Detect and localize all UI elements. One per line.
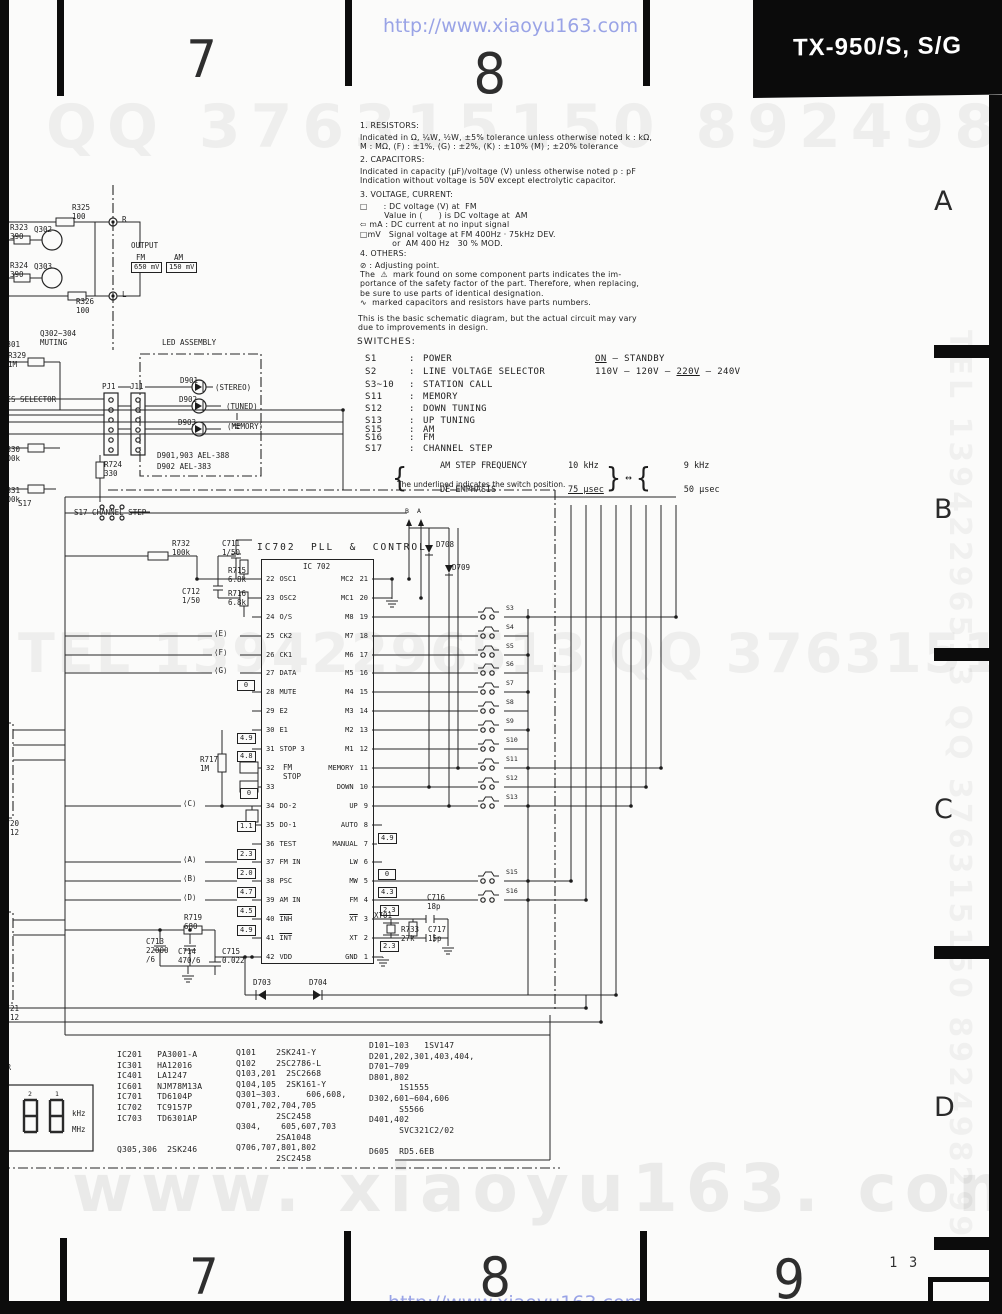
component-label: R733 27k <box>401 926 419 944</box>
ic-pin-right: XT2 <box>292 934 368 942</box>
component-label: IC702 PLL & CONTROL <box>257 544 427 553</box>
parts-list-diodes: D101~103 1SV147D201,202,301,403,404,D701… <box>369 1041 474 1158</box>
channel-step-alt2: 50 μsec <box>684 485 720 495</box>
ic-pin-right: M415 <box>292 688 368 696</box>
voltage-value-box: 4.9 <box>237 733 256 744</box>
note-line: ∿ marked capacitors and resistors have p… <box>360 298 639 307</box>
component-label: 1 <box>55 1090 59 1099</box>
ic-pin-right: MC120 <box>292 594 368 602</box>
section-letter: C <box>934 796 953 823</box>
brace-open-2: { <box>636 471 651 485</box>
component-label: D901 <box>180 377 198 386</box>
component-label: D902 AEL-383 <box>157 463 211 472</box>
switch-symbol: S10 <box>477 736 518 752</box>
parts-line: Q103,201 2SC2668 <box>236 1069 346 1080</box>
voltage-value-box: 650 mV <box>131 262 162 273</box>
switch-function: LINE VOLTAGE SELECTOR <box>423 367 595 377</box>
component-label: AM <box>174 254 183 263</box>
switch-symbol: S9 <box>477 717 514 733</box>
parts-line: Q104,105 2SK161-Y <box>236 1080 346 1091</box>
component-label: D903 <box>178 419 196 428</box>
note-title: 3. VOLTAGE, CURRENT: <box>360 190 556 199</box>
parts-line: D101~103 1SV147 <box>369 1041 474 1052</box>
channel-step-row1-name: AM STEP FREQUENCY <box>440 460 568 472</box>
component-label: C711 1/50 <box>222 540 240 558</box>
voltage-value-box: 4.3 <box>378 887 397 898</box>
component-label: R717 1M <box>200 756 218 774</box>
note-line: Indicated in Ω, ¼W, ½W, ±5% tolerance un… <box>360 133 652 142</box>
switch-positions: 110V – 120V – 220V – 240V <box>595 367 740 377</box>
scan-edge-bottom <box>0 1301 1002 1314</box>
note-others: 4. OTHERS: ⊘ : Adjusting point.The ⚠ mar… <box>360 249 639 307</box>
switch-id: S16 <box>365 433 409 443</box>
corner-bracket-v <box>928 1277 933 1301</box>
ic-pin-right: M213 <box>292 726 368 734</box>
parts-line: D605 RD5.6EB <box>369 1147 474 1158</box>
note-disclaimer: This is the basic schematic diagram, but… <box>358 314 637 333</box>
switch-function: MEMORY <box>423 392 595 402</box>
ic-pin-right: M314 <box>292 707 368 715</box>
switch-id: S11 <box>365 392 409 402</box>
component-label: (MEMORY) <box>227 423 263 432</box>
voltage-value-box: 2.3 <box>237 849 256 860</box>
voltage-value-box: 4.9 <box>378 833 397 844</box>
registration-tick-top-3 <box>643 0 650 86</box>
note-line: The ⚠ mark found on some component parts… <box>360 270 639 279</box>
component-label: ⟨F⟩ <box>214 649 228 658</box>
switch-symbol: S6 <box>477 660 514 676</box>
switches-heading: SWITCHES: <box>357 337 416 347</box>
component-label: D901,903 AEL-388 <box>157 452 229 461</box>
switch-colon: : <box>409 433 423 443</box>
section-letter: A <box>934 188 952 215</box>
parts-line: S5566 <box>369 1105 474 1116</box>
note-line: due to improvements in design. <box>358 323 637 332</box>
section-letter: B <box>934 496 953 523</box>
component-label: C714 470/6 <box>178 948 201 966</box>
corner-bracket-h <box>928 1277 989 1282</box>
model-title: TX-950/S, S/G <box>793 32 962 62</box>
component-label: S17 <box>18 500 32 509</box>
header-page-number-8: 8 <box>473 42 506 107</box>
registration-tick-right-4 <box>934 1237 990 1250</box>
parts-line: 2SC2458 <box>236 1154 346 1165</box>
scanned-schematic-page: QQ 376315150 892498299 TEL 13942296513 Q… <box>0 0 1002 1314</box>
switch-colon: : <box>409 380 423 390</box>
component-label: S17 CHANNEL STEP <box>74 509 146 518</box>
component-label: Q302~304 MUTING <box>40 330 76 348</box>
ic-pin-right: AUTO8 <box>292 821 368 829</box>
note-title: 1. RESISTORS: <box>360 121 652 130</box>
registration-tick-top-2 <box>345 0 352 86</box>
component-label: MHz <box>72 1126 86 1135</box>
component-label: R324 390 <box>10 262 28 280</box>
parts-line: IC601 NJM78M13A <box>117 1082 202 1093</box>
switch-symbol: S8 <box>477 698 514 714</box>
component-label: (TUNED) <box>226 403 258 412</box>
parts-line: IC301 HA12016 <box>117 1061 202 1072</box>
switch-symbol: S7 <box>477 679 514 695</box>
switch-function: DOWN TUNING <box>423 404 595 414</box>
component-label: D708 <box>436 541 454 550</box>
note-line: This is the basic schematic diagram, but… <box>358 314 637 323</box>
parts-line: SVC321C2/02 <box>369 1126 474 1137</box>
registration-tick-bottom-3 <box>640 1231 647 1301</box>
component-label: R724 330 <box>104 461 122 479</box>
parts-line: Q706,707,801,802 <box>236 1143 346 1154</box>
parts-line: Q304, 605,607,703 <box>236 1122 346 1133</box>
component-label: R719 680 <box>184 914 202 932</box>
switch-symbol: S5 <box>477 642 514 658</box>
voltage-value-box: 1.1 <box>237 821 256 832</box>
switch-list-row: S16 : FM <box>365 433 595 443</box>
ic-pin-right: M112 <box>292 745 368 753</box>
channel-step-row2-value: 75 μsec <box>568 485 604 495</box>
component-label: R732 100k <box>172 540 190 558</box>
parts-list-transistors: Q101 2SK241-YQ102 2SC2786-LQ103,201 2SC2… <box>236 1048 346 1165</box>
registration-tick-right-3 <box>934 946 990 959</box>
parts-line: Q101 2SK241-Y <box>236 1048 346 1059</box>
note-title: 4. OTHERS: <box>360 249 639 258</box>
component-label: Q303 <box>34 263 52 272</box>
voltage-value-box: 0 <box>240 788 258 799</box>
component-label: L <box>122 291 127 300</box>
parts-line: IC201 PA3001-A <box>117 1050 202 1061</box>
ic-pin-right: DOWN10 <box>292 783 368 791</box>
note-line: Indicated in capacity (μF)/voltage (V) u… <box>360 167 636 176</box>
parts-line: IC702 TC9157P <box>117 1103 202 1114</box>
parts-line: D302,601~604,606 <box>369 1094 474 1105</box>
component-label: D704 <box>309 979 327 988</box>
registration-tick-top-1 <box>57 0 64 96</box>
component-label: Q302 <box>34 226 52 235</box>
switch-list-row: S12 : DOWN TUNING <box>365 404 595 414</box>
section-letter: D <box>934 1094 955 1121</box>
ic-pin-right: XT3 <box>292 915 368 923</box>
switch-symbol: S12 <box>477 774 518 790</box>
scan-edge-right <box>989 95 1002 1314</box>
note-line: ⊘ : Adjusting point. <box>360 261 639 270</box>
component-label: C715 0.022 <box>222 948 245 966</box>
ic-pin-right: M617 <box>292 651 368 659</box>
footer-page-number-7: 7 <box>189 1248 218 1306</box>
parts-line: IC701 TD6104P <box>117 1092 202 1103</box>
component-label: 2 <box>28 1090 32 1099</box>
parts-line: D401,402 <box>369 1115 474 1126</box>
note-capacitors: 2. CAPACITORS: Indicated in capacity (μF… <box>360 155 636 185</box>
parts-list-ic: IC201 PA3001-AIC301 HA12016IC401 LA1247I… <box>117 1050 202 1156</box>
voltage-value-box: 2.0 <box>237 868 256 879</box>
ic-pin-right: FM4 <box>292 896 368 904</box>
switch-id: S1 <box>365 354 409 364</box>
switch-colon: : <box>409 367 423 377</box>
component-label: SIS SELECTOR <box>2 396 56 405</box>
switch-colon: : <box>409 404 423 414</box>
note-line: portance of the safety factor of the par… <box>360 279 639 288</box>
note-line: M : MΩ, (F) : ±1%, (G) : ±2%, (K) : ±10%… <box>360 142 652 151</box>
component-label: ⟨B⟩ <box>183 875 197 884</box>
switch-colon: : <box>409 354 423 364</box>
voltage-value-box: 150 mV <box>166 262 197 273</box>
component-label: C712 1/50 <box>182 588 200 606</box>
component-label: R325 100 <box>72 204 90 222</box>
voltage-value-box: 4.5 <box>237 906 256 917</box>
note-line: or AM 400 Hz 30 % MOD. <box>360 239 556 248</box>
note-line: Indication without voltage is 50V except… <box>360 176 636 185</box>
note-resistors: 1. RESISTORS: Indicated in Ω, ¼W, ½W, ±5… <box>360 121 652 151</box>
component-label: X701 <box>374 912 392 921</box>
component-label: J11 <box>130 383 144 392</box>
component-label: A <box>417 507 421 516</box>
note-voltage-current: 3. VOLTAGE, CURRENT: □ : DC voltage (V) … <box>360 190 556 248</box>
footer-sheet-number: 1 3 <box>889 1255 921 1271</box>
component-label: C716 18p <box>427 894 445 912</box>
parts-line: IC703 TD6301AP <box>117 1114 202 1125</box>
component-label: (STEREO) <box>215 384 251 393</box>
channel-step-table: { AM STEP FREQUENCY10 kHz DE-EMPHASIS75 … <box>390 448 720 508</box>
component-label: ⟨C⟩ <box>183 800 197 809</box>
component-label: D703 <box>253 979 271 988</box>
component-label: FM STOP <box>283 764 301 782</box>
channel-step-row1-value: 10 kHz <box>568 461 599 471</box>
registration-tick-bottom-2 <box>344 1231 351 1301</box>
component-label: C717 15p <box>428 926 446 944</box>
ic-pin-right: M819 <box>292 613 368 621</box>
underline-note: The underlined indicates the switch posi… <box>397 480 565 489</box>
switch-list-row: S2 : LINE VOLTAGE SELECTOR 110V – 120V –… <box>365 367 740 377</box>
parts-line: D801,802 <box>369 1073 474 1084</box>
component-label: R323 390 <box>10 224 28 242</box>
ic-pin-right: MW5 <box>292 877 368 885</box>
component-label: R <box>122 216 127 225</box>
parts-line: D701~709 <box>369 1062 474 1073</box>
parts-line <box>369 1136 474 1147</box>
component-label: B <box>405 507 409 516</box>
parts-line: Q301~303. 606,608, <box>236 1090 346 1101</box>
switch-list-row: S1 : POWER ON — STANDBY <box>365 354 665 364</box>
component-label: D709 <box>452 564 470 573</box>
switch-symbol: S16 <box>477 887 518 903</box>
channel-step-alt1: 9 kHz <box>684 461 710 471</box>
voltage-value-box: 0 <box>237 680 255 691</box>
ic-pin-right: MEMORY11 <box>292 764 368 772</box>
component-label: R326 100 <box>76 298 94 316</box>
component-label: R715 6.8k <box>228 567 246 585</box>
parts-line: 1S1555 <box>369 1083 474 1094</box>
switch-symbol: S15 <box>477 868 518 884</box>
parts-line: Q305,306 2SK246 <box>117 1145 202 1156</box>
parts-line <box>117 1135 202 1146</box>
switch-function: FM <box>423 433 595 443</box>
parts-line: Q102 2SC2786-L <box>236 1059 346 1070</box>
note-line: ⇦ mA : DC current at no input signal <box>360 220 556 229</box>
registration-tick-right-2 <box>934 648 990 661</box>
voltage-value-box: 4.7 <box>237 887 256 898</box>
model-title-box: TX-950/S, S/G <box>753 0 1002 98</box>
parts-line: IC401 LA1247 <box>117 1071 202 1082</box>
ic-pin-right: MANUAL7 <box>292 840 368 848</box>
component-label: D902 <box>179 396 197 405</box>
switch-id: S3~10 <box>365 380 409 390</box>
switch-colon: : <box>409 392 423 402</box>
voltage-value-box: 4.8 <box>237 751 256 762</box>
component-label: C713 22000 /6 <box>146 938 169 964</box>
component-label: kHz <box>72 1110 86 1119</box>
component-label: R329 1M <box>8 352 26 370</box>
component-label: ⟨A⟩ <box>183 856 197 865</box>
parts-line: Q701,702,704,705 <box>236 1101 346 1112</box>
component-label: FM <box>136 254 145 263</box>
component-label: OUTPUT <box>131 242 158 251</box>
header-page-number-7: 7 <box>186 30 216 90</box>
registration-tick-right-1 <box>934 345 990 358</box>
switch-function: POWER <box>423 354 595 364</box>
parts-line: 2SC2458 <box>236 1112 346 1123</box>
note-title: 2. CAPACITORS: <box>360 155 636 164</box>
voltage-value-box: 2.3 <box>380 941 399 952</box>
parts-line: D201,202,301,403,404, <box>369 1052 474 1063</box>
note-line: Value in ( ) is DC voltage at AM <box>360 211 556 220</box>
component-label: R716 6.8k <box>228 590 246 608</box>
switch-symbol: S11 <box>477 755 518 771</box>
switch-function: STATION CALL <box>423 380 595 390</box>
component-label: ⟨G⟩ <box>214 667 228 676</box>
switch-list-row: S3~10 : STATION CALL <box>365 380 595 390</box>
ic-pin-right: LW6 <box>292 858 368 866</box>
ic-pin-right: GND1 <box>292 953 368 961</box>
component-label: ⟨D⟩ <box>183 894 197 903</box>
ic-pin-right: UP9 <box>292 802 368 810</box>
switch-list-row: S11 : MEMORY <box>365 392 595 402</box>
switch-symbol: S3 <box>477 604 514 620</box>
component-label: ⟨E⟩ <box>214 630 228 639</box>
component-label: PJ1 <box>102 383 116 392</box>
swap-arrow: ↔ <box>625 472 632 484</box>
scan-edge-left <box>0 0 9 1314</box>
ic-pin-right: M718 <box>292 632 368 640</box>
switch-symbol: S13 <box>477 793 518 809</box>
note-line: □ : DC voltage (V) at FM <box>360 202 556 211</box>
ic-pin-right: MC221 <box>292 575 368 583</box>
component-label: LED ASSEMBLY <box>162 339 216 348</box>
ic-pin-right: M516 <box>292 669 368 677</box>
switch-id: S2 <box>365 367 409 377</box>
registration-tick-bottom-1 <box>60 1238 67 1301</box>
switch-symbol: S4 <box>477 623 514 639</box>
parts-line <box>117 1124 202 1135</box>
voltage-value-box: 0 <box>378 869 396 880</box>
switch-positions: ON — STANDBY <box>595 354 665 364</box>
parts-line: 2SA1048 <box>236 1133 346 1144</box>
brace-close: } <box>606 471 621 485</box>
note-line: □mV Signal voltage at FM 400Hz · 75kHz D… <box>360 230 556 239</box>
component-label: IC 702 <box>303 563 330 572</box>
note-line: be sure to use parts of identical design… <box>360 289 639 298</box>
switch-id: S12 <box>365 404 409 414</box>
voltage-value-box: 4.9 <box>237 925 256 936</box>
